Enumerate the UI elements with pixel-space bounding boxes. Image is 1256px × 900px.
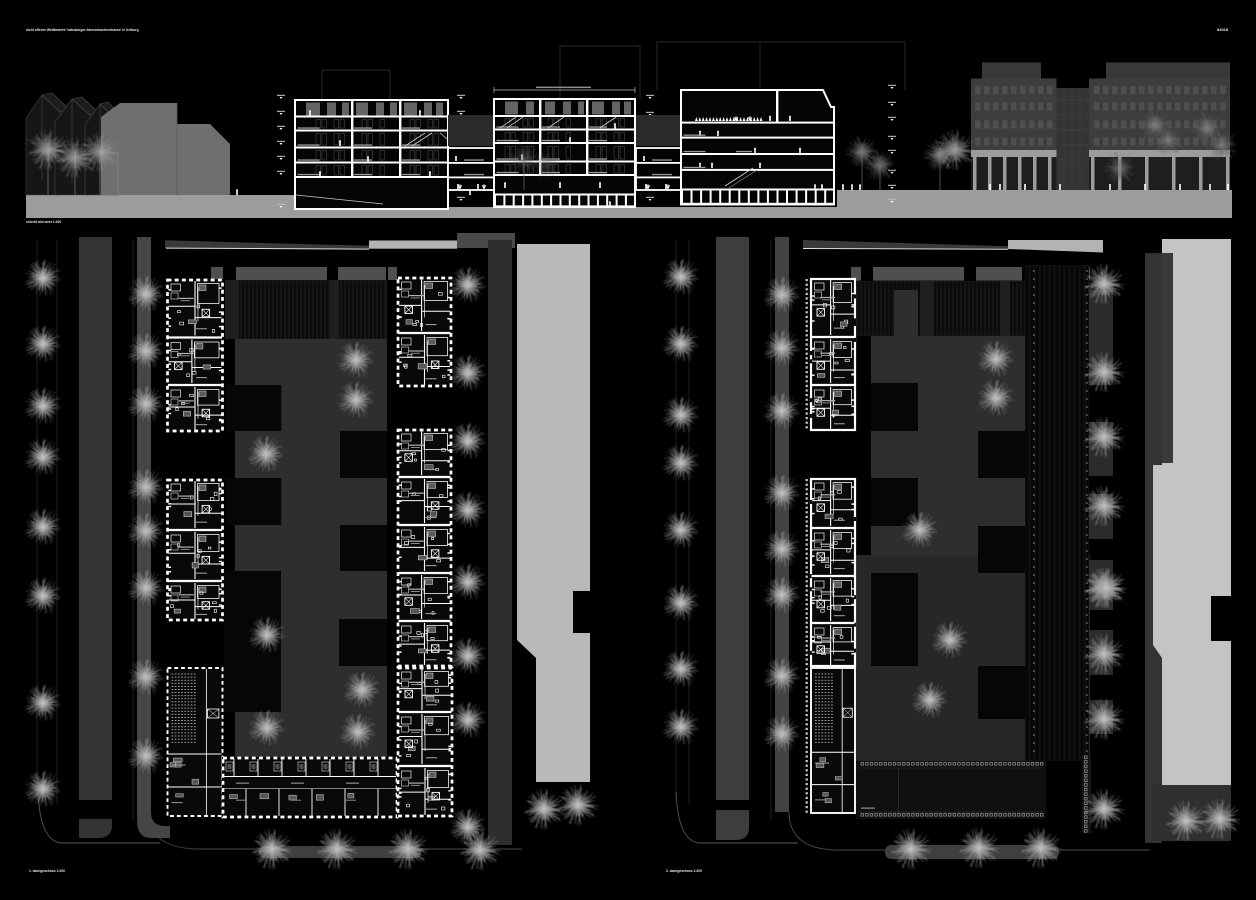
- svg-text:2. dachgeschoss 1:200: 2. dachgeschoss 1:200: [666, 869, 702, 873]
- svg-text:nicht offener Wettbewerb ‘habs: nicht offener Wettbewerb ‘habsburger-/te…: [26, 28, 139, 32]
- svg-text:schnitt süd west 1:200: schnitt süd west 1:200: [26, 220, 61, 224]
- svg-text:84018: 84018: [1217, 27, 1229, 32]
- svg-text:1. dachgeschoss 1:200: 1. dachgeschoss 1:200: [29, 869, 65, 873]
